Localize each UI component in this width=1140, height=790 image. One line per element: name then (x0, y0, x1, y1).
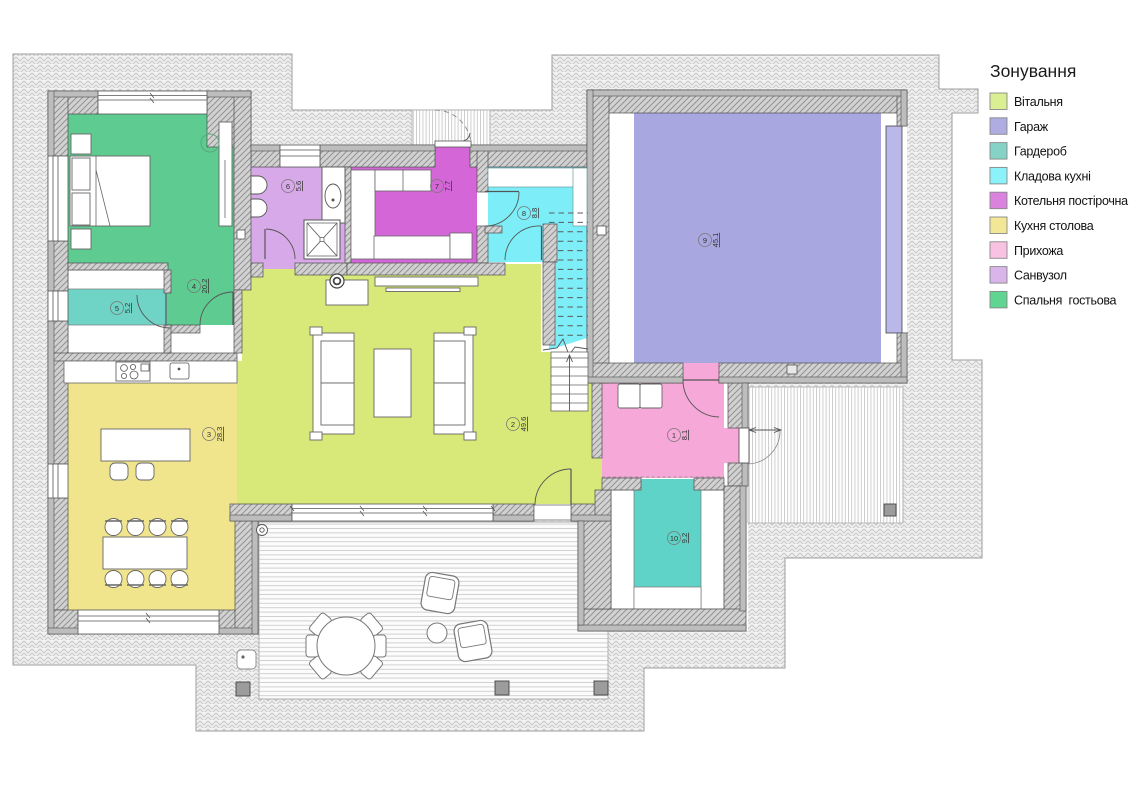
svg-text:Котельня постірочна: Котельня постірочна (1014, 194, 1128, 208)
svg-text:3: 3 (207, 430, 211, 439)
svg-text:9.2: 9.2 (680, 533, 689, 543)
svg-text:7.7: 7.7 (443, 181, 452, 191)
svg-text:Санвузол: Санвузол (1014, 269, 1067, 283)
svg-text:5.2: 5.2 (123, 303, 132, 313)
svg-text:Зонування: Зонування (990, 61, 1076, 81)
svg-text:2: 2 (511, 420, 515, 429)
svg-text:4: 4 (192, 282, 196, 291)
svg-text:Прихожа: Прихожа (1014, 244, 1063, 258)
svg-text:6: 6 (286, 182, 290, 191)
svg-text:10: 10 (670, 534, 678, 543)
svg-text:Вітальня: Вітальня (1014, 95, 1063, 109)
svg-text:20.2: 20.2 (200, 279, 209, 294)
svg-text:8.1: 8.1 (680, 430, 689, 440)
svg-text:45.1: 45.1 (711, 233, 720, 248)
svg-text:5.6: 5.6 (294, 181, 303, 191)
svg-text:Гардероб: Гардероб (1014, 145, 1067, 159)
svg-text:49.6: 49.6 (519, 417, 528, 432)
svg-text:28.3: 28.3 (215, 427, 224, 442)
svg-text:8.8: 8.8 (530, 208, 539, 218)
svg-text:5: 5 (115, 304, 119, 313)
svg-text:1: 1 (672, 431, 676, 440)
svg-text:Гараж: Гараж (1014, 120, 1049, 134)
svg-text:Кухня столова: Кухня столова (1014, 219, 1094, 233)
svg-text:Спальня гостьова: Спальня гостьова (1014, 293, 1117, 307)
svg-text:Кладова кухні: Кладова кухні (1014, 169, 1091, 183)
svg-text:9: 9 (703, 236, 707, 245)
svg-text:7: 7 (435, 182, 439, 191)
svg-text:8: 8 (522, 209, 526, 218)
